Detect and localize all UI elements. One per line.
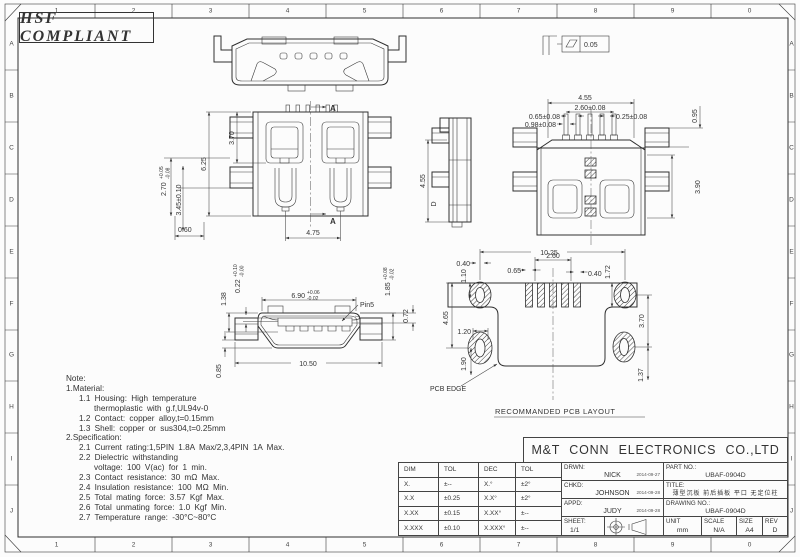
dim-front-inner-h: 1.85 +0.08 -0.02 [383, 267, 396, 296]
hsf-compliant-label: HSF COMPLIANT [20, 10, 153, 46]
dim-bottom-pinspan: 2.60±0.08 [574, 105, 605, 112]
solder-pads [585, 158, 596, 216]
tol-table-cell: ±-- [516, 507, 562, 522]
svg-text:-0.02: -0.02 [307, 296, 319, 302]
zone-label: 5 [363, 8, 367, 15]
drawing-no-cell: DRAWING NO.: UBAF-0904D [663, 498, 788, 517]
part-no-label: PART NO.: [666, 464, 696, 471]
zone-label: 6 [440, 541, 444, 548]
pin-row [563, 114, 618, 140]
appd-cell: APPD: JUDY 2014-09-28 [561, 498, 664, 517]
zone-label: C [789, 144, 794, 151]
zone-label: 2 [132, 541, 136, 548]
pcb-layout-title: RECOMMANDED PCB LAYOUT [495, 407, 615, 416]
dim-pcb-bottomleft: 1.90 [461, 357, 468, 371]
tol-table-cell: ±2° [516, 492, 562, 507]
zone-label: A [789, 41, 793, 48]
zone-label: C [9, 144, 14, 151]
note-line: 1.3 Shell: copper or sus304,t=0.25mm [79, 424, 284, 434]
zone-label: G [789, 352, 794, 359]
company-name: M&T CONN ELECTRONICS CO.,LTD [531, 443, 779, 457]
note-line: 2.2 Dielectric withstanding [79, 453, 284, 463]
scale-label: SCALE [704, 518, 724, 525]
dim-pcb-bottomright: 1.37 [638, 368, 645, 382]
dim-pcb-right-h: 3.70 [639, 314, 646, 328]
unit-cell: UNIT mm [663, 516, 702, 536]
drwn-label: DRWN: [564, 464, 585, 471]
svg-text:6.90: 6.90 [291, 293, 305, 300]
zone-label: 1 [55, 8, 59, 15]
tol-table-cell: X.XXX [399, 521, 439, 536]
svg-text:-0.02: -0.02 [390, 268, 396, 280]
dim-bottom-depth: 3.90 [695, 180, 702, 194]
tol-table-cell: X.XX° [479, 507, 516, 522]
tol-table-cell: ±0.25 [439, 492, 479, 507]
note-line: Note: [66, 374, 284, 384]
zone-label: E [9, 248, 13, 255]
company-header: M&T CONN ELECTRONICS CO.,LTD [523, 437, 788, 463]
zone-label: 7 [517, 541, 521, 548]
tol-table-cell: X.° [479, 478, 516, 493]
zone-label: 4 [286, 541, 290, 548]
zone-label: 9 [671, 541, 675, 548]
section-label-bottom: A [330, 217, 336, 226]
dim-plan-offset: 0.60 [178, 227, 192, 234]
note-line: 2.7 Temperature range: -30°C~80°C [79, 513, 284, 523]
front-view: 6.90 +0.06 -0.02 Pin5 0.22 +0.10 -0.00 1… [216, 264, 416, 378]
hsf-compliant-badge: HSF COMPLIANT [19, 12, 154, 43]
note-line: 2.4 Insulation resistance: 100 MΩ Min. [79, 483, 284, 493]
zone-label: H [9, 404, 14, 411]
zone-label: F [790, 300, 794, 307]
rev-value: D [763, 527, 787, 534]
drawing-no-value: UBAF-0904D [664, 508, 787, 515]
tol-table-cell: ±0.10 [439, 521, 479, 536]
size-label: SIZE [739, 518, 753, 525]
tol-table-cell: ±2° [516, 478, 562, 493]
drwn-cell: DRWN: NICK 2014-09-27 [561, 462, 664, 481]
svg-text:+0.08: +0.08 [383, 267, 389, 280]
title-cell: TITLE: 薄型沉板 前后插板 平口 无定位柱 [663, 480, 788, 499]
zone-label: 8 [594, 8, 598, 15]
dim-front-step: 0.72 [403, 309, 410, 323]
zone-label: B [9, 92, 13, 99]
tol-table-cell: ±-- [439, 478, 479, 493]
sheet-value: 1/1 [570, 527, 579, 534]
dim-pcb-pitch: 2.60 [546, 253, 560, 260]
zone-label: 4 [286, 8, 290, 15]
part-no-value: UBAF-0904D [664, 472, 787, 479]
dim-plan-tail: 2.70 +0.05 -0.08 [159, 166, 172, 196]
part-no-cell: PART NO.: UBAF-0904D [663, 462, 788, 481]
zone-label: H [789, 404, 794, 411]
pcb-edge-label: PCB EDGE [430, 386, 467, 393]
tol-table-cell: X.X [399, 492, 439, 507]
dim-pcb-left-h: 4.65 [443, 311, 450, 325]
zone-label: G [9, 352, 14, 359]
dim-pcb-topright-h: 1.72 [605, 265, 612, 279]
zone-label: I [11, 456, 13, 463]
tol-table-cell: X.XXX° [479, 521, 516, 536]
zone-label: 9 [671, 8, 675, 15]
zone-label: D [789, 196, 794, 203]
note-line: thermoplastic with g.f,UL94v-0 [94, 404, 284, 414]
sheet-cell: SHEET: 1/1 [561, 516, 664, 536]
svg-text:-0.08: -0.08 [166, 167, 172, 179]
svg-text:+0.05: +0.05 [159, 166, 165, 179]
tol-table-cell: ±-- [516, 521, 562, 536]
dim-bottom-foot: 0.98±0.08 [525, 122, 556, 129]
zone-label: F [10, 300, 14, 307]
dim-bottom-pinrow: 4.55 [578, 95, 592, 102]
note-line: 2.5 Total mating force: 3.57 Kgf Max. [79, 493, 284, 503]
tol-table-header: TOL [439, 463, 479, 478]
bottom-view: 4.55 2.60±0.08 0.65±0.08 0.98±0.08 0.25±… [513, 95, 703, 245]
dim-front-width: 10.50 [299, 361, 317, 368]
zone-label: 3 [209, 8, 213, 15]
dim-bottom-pinwidth: 0.25±0.08 [616, 114, 647, 121]
dim-pcb-padleft-w: 1.20 [457, 329, 471, 336]
scale-cell: SCALE N/A [701, 516, 737, 536]
svg-text:-0.00: -0.00 [240, 265, 246, 277]
dim-front-lip: 1.38 [221, 292, 228, 306]
zone-label: B [789, 92, 793, 99]
plan-view: A A 6.25 3.70 2.70 +0.05 -0.08 3.45±0.10… [159, 101, 391, 241]
flatness-callout: 0.05 [543, 36, 609, 55]
dim-plan-legspan: 4.75 [306, 230, 320, 237]
zone-label: 1 [55, 541, 59, 548]
note-line: 2.1 Current rating:1,5PIN 1.8A Max/2,3,4… [79, 443, 284, 453]
side-view-marker: D [431, 201, 438, 206]
zone-label: 3 [209, 541, 213, 548]
tol-table-header: DIM [399, 463, 439, 478]
dim-plan-inner: 3.70 [229, 131, 236, 145]
zone-label: 5 [363, 541, 367, 548]
dim-side-height: 4.55 [420, 174, 427, 188]
tol-table-header: DEC [479, 463, 516, 478]
svg-text:+0.10: +0.10 [233, 264, 239, 277]
dim-pcb-padgap: 0.65 [507, 268, 521, 275]
top-elevation-view: 0.05 [214, 36, 609, 91]
tolerance-table: DIMTOLDECTOLX.±--X.°±2°X.X±0.25X.X°±2°X.… [398, 462, 562, 536]
tol-table-cell: ±0.15 [439, 507, 479, 522]
zone-label: I [791, 456, 793, 463]
tol-table-cell: X. [399, 478, 439, 493]
zone-label: 6 [440, 8, 444, 15]
tol-table-cell: X.X° [479, 492, 516, 507]
tol-table-cell: X.XX [399, 507, 439, 522]
note-line: 1.2 Contact: copper alloy,t=0.15mm [79, 414, 284, 424]
scale-value: N/A [702, 527, 736, 534]
tol-table-header: TOL [516, 463, 562, 478]
zone-label: E [789, 248, 793, 255]
chkd-cell: CHKD: JOHNSON 2014-09-28 [561, 480, 664, 499]
dim-flatness: 0.05 [584, 42, 598, 49]
chkd-date: 2014-09-28 [637, 490, 661, 495]
rev-cell: REV D [762, 516, 788, 536]
zone-label: A [9, 41, 13, 48]
note-line: 2.3 Contact resistance: 30 mΩ Max. [79, 473, 284, 483]
note-line: 1.Material: [66, 384, 284, 394]
zone-label: J [10, 508, 13, 515]
rev-label: REV [765, 518, 778, 525]
note-line: 1.1 Housing: High temperature [79, 394, 284, 404]
section-label-top: A [330, 104, 336, 113]
zone-label: 8 [594, 541, 598, 548]
flatness-icon [566, 40, 577, 47]
appd-label: APPD: [564, 500, 583, 507]
drawing-sheet: 0.05 A A 6.2 [0, 0, 800, 557]
dim-bottom-pitch: 0.65±0.08 [529, 114, 560, 121]
dim-plan-tail2: 3.45±0.10 [176, 184, 183, 215]
appd-date: 2014-09-28 [637, 508, 661, 513]
note-line: 2.Specification: [66, 433, 284, 443]
title-value: 薄型沉板 前后插板 平口 无定位柱 [664, 488, 787, 497]
note-line: voltage: 100 V(ac) for 1 min. [94, 463, 284, 473]
pcb-layout-view: 10.25 2.60 0.40 0.65 0.40 1.10 1.72 4.65… [430, 249, 652, 417]
note-line: 2.6 Total unmating force: 1.0 Kgf Min. [79, 503, 284, 513]
drawing-no-label: DRAWING NO.: [666, 500, 710, 507]
zone-label: J [790, 508, 793, 515]
unit-label: UNIT [666, 518, 680, 525]
side-view: 4.55 D [420, 118, 471, 227]
unit-value: mm [664, 527, 701, 534]
dim-pcb-padw-right: 0.40 [588, 271, 602, 278]
dim-plan-height: 6.25 [201, 157, 208, 171]
zone-label: 7 [517, 8, 521, 15]
pin5-label: Pin5 [360, 302, 374, 309]
drwn-date: 2014-09-27 [637, 472, 661, 477]
chkd-label: CHKD: [564, 482, 583, 489]
zone-label: 0 [748, 8, 752, 15]
svg-text:1.85: 1.85 [385, 282, 392, 296]
zone-label: 2 [132, 8, 136, 15]
size-cell: SIZE A4 [736, 516, 763, 536]
sheet-label: SHEET: [564, 518, 586, 525]
svg-text:2.70: 2.70 [161, 182, 168, 196]
dim-pcb-padw-left: 0.40 [456, 261, 470, 268]
dim-front-tongue: 0.22 +0.10 -0.00 [233, 264, 246, 293]
svg-text:0.22: 0.22 [235, 279, 242, 293]
size-value: A4 [737, 527, 762, 534]
zone-label: D [9, 196, 14, 203]
dim-bottom-legedge: 0.95 [692, 109, 699, 123]
zone-label: 0 [748, 541, 752, 548]
notes-block: Note:1.Material:1.1 Housing: High temper… [66, 374, 284, 523]
dim-pcb-topleft-h: 1.10 [461, 269, 468, 283]
